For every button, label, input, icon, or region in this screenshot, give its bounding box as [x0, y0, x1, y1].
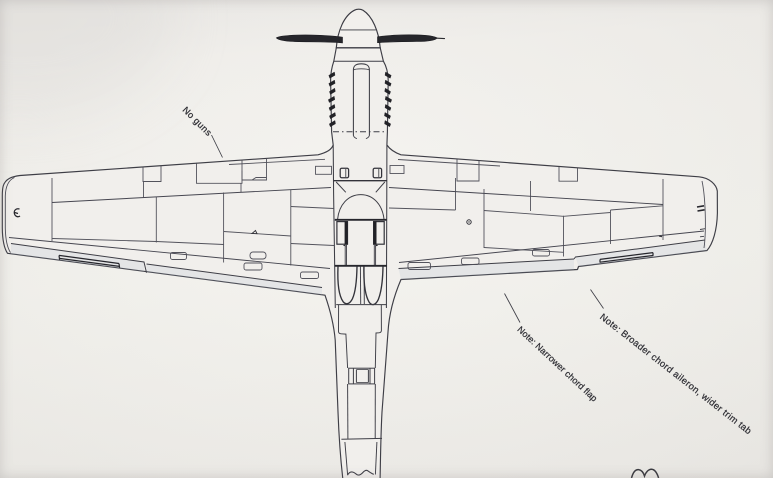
svg-text:Note: Narrower chord flap: Note: Narrower chord flap — [515, 324, 599, 403]
svg-text:Note: Broader chord aileron, w: Note: Broader chord aileron, wider trim … — [598, 311, 754, 436]
svg-text:No guns: No guns — [181, 105, 214, 138]
